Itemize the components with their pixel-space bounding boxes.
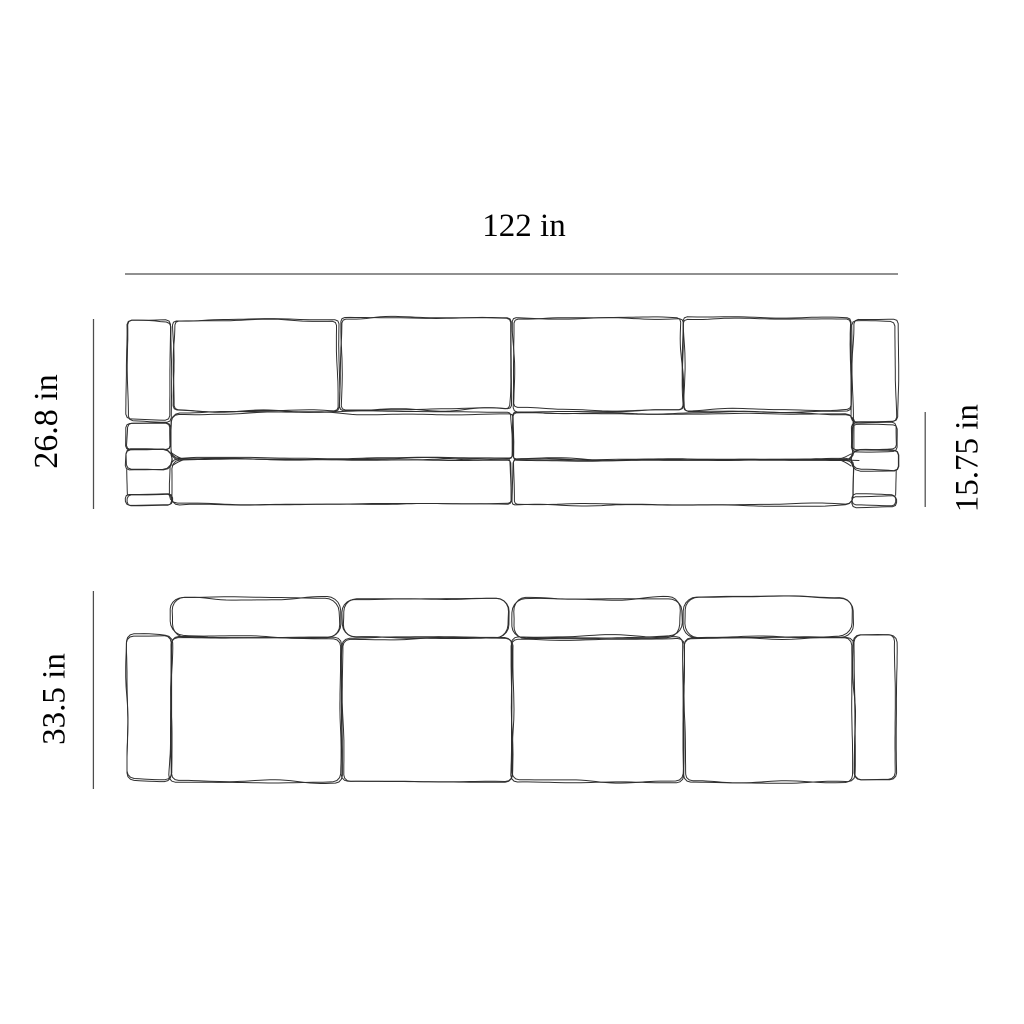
svg-text:15.75 in: 15.75 in bbox=[950, 404, 986, 512]
svg-text:122 in: 122 in bbox=[482, 208, 565, 244]
svg-text:26.8 in: 26.8 in bbox=[28, 374, 65, 468]
svg-text:33.5 in: 33.5 in bbox=[37, 653, 73, 745]
